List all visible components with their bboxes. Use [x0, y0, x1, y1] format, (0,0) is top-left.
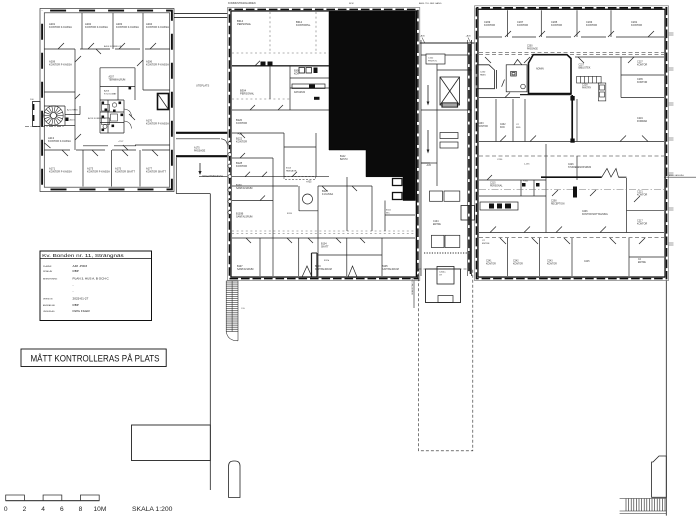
svg-text:PASSAGE: PASSAGE	[194, 150, 206, 153]
svg-text:PERSONAL: PERSONAL	[240, 92, 255, 96]
svg-text:0: 0	[4, 506, 8, 513]
svg-text:KAPITALSRUM: KAPITALSRUM	[382, 268, 399, 271]
svg-text:KONTOR SKATT: KONTOR SKATT	[146, 170, 166, 174]
svg-text:KOMMUNTRADGARDEN: KOMMUNTRADGARDEN	[228, 2, 256, 5]
svg-text:SAMTALSRUM: SAMTALSRUM	[236, 216, 252, 219]
svg-text:KONTOR F-KASSA: KONTOR F-KASSA	[146, 122, 169, 126]
svg-text:SKALA 1:200: SKALA 1:200	[132, 506, 173, 513]
svg-text:KONTOR F-KASSA: KONTOR F-KASSA	[146, 25, 169, 29]
svg-text:Kv. Bonden nr. 11, Strängnäs: Kv. Bonden nr. 11, Strängnäs	[42, 253, 124, 258]
svg-text:KOK: KOK	[500, 127, 505, 129]
svg-text:KONTOR: KONTOR	[586, 23, 597, 27]
svg-text:A213: A213	[70, 119, 76, 122]
svg-text:C241: C241	[486, 261, 492, 263]
svg-text:C245: C245	[584, 261, 590, 263]
svg-text:KONTOR F-KASSA: KONTOR F-KASSA	[116, 25, 139, 29]
svg-text:+A35: +A35	[466, 34, 472, 37]
svg-text:A207: A207	[109, 76, 115, 79]
svg-text:C243: C243	[547, 261, 553, 263]
svg-text:KONTOR F-KASSA: KONTOR F-KASSA	[87, 170, 110, 174]
svg-text:4: 4	[41, 506, 45, 513]
svg-text:C204a: C204a	[439, 272, 446, 274]
svg-text:DATARUM: DATARUM	[294, 91, 305, 94]
svg-text:FRD/KYL: FRD/KYL	[428, 61, 438, 63]
svg-text:PLAN 3, HUS A, B OCH C: PLAN 3, HUS A, B OCH C	[73, 276, 110, 280]
svg-text:C200: C200	[527, 45, 533, 47]
svg-text:KONTOR: KONTOR	[637, 223, 647, 226]
svg-text:KONTOR F-KASSA: KONTOR F-KASSA	[85, 25, 108, 29]
svg-text:SKARMTAK OVER: SKARMTAK OVER	[411, 276, 414, 295]
svg-text:KYL KLIMAT: KYL KLIMAT	[104, 93, 117, 96]
svg-text:RECEPTION: RECEPTION	[551, 204, 565, 206]
svg-text:KONTOR SKATT: KONTOR SKATT	[115, 170, 135, 174]
svg-text:A211 PASS: A211 PASS	[67, 109, 78, 112]
svg-text:KONTOR: KONTOR	[236, 121, 247, 125]
svg-text:+TILT: +TILT	[118, 141, 124, 143]
svg-text:C226: C226	[568, 164, 574, 166]
svg-text:KONTOR F-KASSA: KONTOR F-KASSA	[49, 25, 72, 29]
svg-text:PERSONAL: PERSONAL	[237, 22, 252, 26]
svg-text:B111: B111	[386, 210, 392, 212]
svg-text:A215 KORRIDOR: A215 KORRIDOR	[88, 117, 106, 120]
svg-text:KONTOR: KONTOR	[637, 81, 647, 84]
svg-text:KONTOR: KONTOR	[236, 140, 247, 144]
svg-text:2023-01-27: 2023-01-27	[73, 296, 89, 300]
svg-text:B114: B114	[286, 167, 292, 169]
svg-text:FORRAD: FORRAD	[637, 120, 647, 123]
svg-text:-A35: -A35	[426, 164, 432, 167]
svg-text:BASTU: BASTU	[340, 158, 348, 161]
svg-text:FIKA: FIKA	[523, 180, 528, 183]
svg-text:KONTOR F-KASSA: KONTOR F-KASSA	[49, 170, 72, 174]
svg-text:KONTOR: KONTOR	[478, 126, 488, 128]
svg-text:8: 8	[79, 506, 83, 513]
svg-text:KONTOR F-KASSA: KONTOR F-KASSA	[146, 63, 169, 67]
svg-text:WC: WC	[386, 213, 390, 215]
svg-text:BESKRIVNING: BESKRIVNING	[43, 278, 58, 280]
svg-text:C233: C233	[478, 123, 484, 125]
svg-text:FRD: FRD	[516, 127, 521, 129]
svg-text:C206: C206	[582, 211, 588, 213]
svg-text:BIBLIOTEK: BIBLIOTEK	[579, 68, 591, 70]
svg-text:-: -	[73, 289, 74, 293]
svg-text:C230: C230	[480, 72, 486, 74]
svg-text:PASSAGE: PASSAGE	[527, 48, 538, 51]
svg-text:C242: C242	[513, 261, 519, 263]
svg-text:PERSONAL: PERSONAL	[490, 185, 503, 188]
svg-text:J-135: J-135	[524, 164, 530, 166]
svg-text:RITAD AV: RITAD AV	[43, 270, 53, 273]
svg-text:KONTOR: KONTOR	[484, 23, 495, 27]
svg-text:KONTOR: KONTOR	[631, 23, 642, 27]
svg-text:A206: A206	[104, 90, 110, 93]
svg-text:+A35: +A35	[420, 34, 426, 37]
svg-text:KÖK: KÖK	[294, 73, 299, 76]
svg-text:+A35: +A35	[306, 181, 312, 184]
svg-text:ANDRAD AV: ANDRAD AV	[43, 304, 55, 307]
svg-text:C228: C228	[582, 85, 588, 87]
svg-text:6: 6	[60, 506, 64, 513]
svg-text:MÅTT KONTROLLERAS PÅ PLATS: MÅTT KONTROLLERAS PÅ PLATS	[31, 354, 160, 364]
svg-text:A204 KORRIDOR: A204 KORRIDOR	[104, 45, 122, 48]
svg-text:F-KASSA: F-KASSA	[322, 192, 333, 196]
svg-text:C227: C227	[579, 65, 585, 67]
svg-text:PANTRY: PANTRY	[582, 87, 592, 90]
svg-text:ANSL GANGVAG: ANSL GANGVAG	[669, 174, 684, 177]
svg-text:PASS: PASS	[480, 74, 486, 77]
svg-text:KONTOR: KONTOR	[637, 194, 647, 197]
svg-text:C162: C162	[428, 58, 434, 60]
svg-text:DWG FILER: DWG FILER	[73, 309, 91, 313]
svg-text:ENTRE: ENTRE	[433, 224, 441, 226]
svg-text:ENTRE: ENTRE	[638, 262, 646, 264]
svg-text:ANSL TILL BEF GANG: ANSL TILL BEF GANG	[419, 2, 442, 5]
svg-text:ENTRE: ENTRE	[482, 243, 490, 245]
svg-text:UNDERLAG: UNDERLAG	[43, 310, 55, 313]
svg-text:KONTORSL.: KONTORSL.	[296, 23, 311, 27]
svg-text:B142: B142	[340, 156, 346, 158]
svg-text:10M: 10M	[94, 506, 107, 513]
svg-text:ROK: ROK	[349, 3, 354, 5]
svg-text:KONTOR: KONTOR	[513, 264, 523, 266]
svg-text:KONTOR: KONTOR	[517, 23, 528, 27]
svg-text:KONTOR: KONTOR	[551, 23, 562, 27]
svg-text:RBP: RBP	[73, 269, 79, 273]
svg-text:2: 2	[23, 506, 27, 513]
svg-text:KAPITALSRUM: KAPITALSRUM	[315, 268, 332, 271]
svg-text:KONTOR MOTTAGNING: KONTOR MOTTAGNING	[582, 213, 608, 216]
svg-text:PASSAGE: PASSAGE	[286, 170, 297, 173]
svg-text:B306: B306	[294, 71, 300, 73]
svg-text:SAMTALSRUM: SAMTALSRUM	[236, 187, 252, 190]
svg-text:FG: FG	[242, 308, 245, 310]
svg-text:SKATT: SKATT	[321, 246, 329, 249]
svg-text:TERMINALRUM: TERMINALRUM	[109, 79, 126, 82]
svg-text:KONTOR: KONTOR	[547, 264, 557, 266]
svg-text:ADMIN: ADMIN	[536, 68, 544, 71]
svg-text:B115: B115	[287, 213, 293, 215]
svg-text:C208: C208	[551, 201, 557, 203]
svg-text:KONTOR F-KASSA: KONTOR F-KASSA	[49, 63, 72, 67]
svg-text:A48 -P003: A48 -P003	[73, 264, 88, 268]
svg-text:STUDIEBESOKSRUM: STUDIEBESOKSRUM	[568, 167, 591, 169]
svg-text:C104: C104	[433, 221, 439, 223]
svg-text:KONTOR F-KASSA: KONTOR F-KASSA	[48, 139, 71, 143]
svg-text:RBP: RBP	[73, 303, 79, 307]
svg-text:C215: C215	[490, 182, 496, 184]
svg-text:SAMTALSRUM: SAMTALSRUM	[237, 268, 253, 271]
svg-text:-: -	[73, 284, 74, 288]
svg-text:C232: C232	[500, 124, 506, 126]
svg-text:B12b: B12b	[324, 260, 330, 262]
svg-text:KONTOR: KONTOR	[486, 264, 496, 266]
svg-text:KONTOR: KONTOR	[637, 64, 647, 67]
svg-text:-A35: -A35	[237, 133, 243, 136]
svg-text:UTEPLATS: UTEPLATS	[196, 84, 209, 88]
svg-text:C230: C230	[497, 159, 503, 161]
svg-text:ANSLUTNINGSVAG: ANSLUTNINGSVAG	[202, 175, 223, 178]
svg-text:KONTOR: KONTOR	[236, 164, 247, 168]
svg-text:PLANNR: PLANNR	[43, 265, 52, 268]
svg-text:VERSION: VERSION	[43, 298, 53, 300]
